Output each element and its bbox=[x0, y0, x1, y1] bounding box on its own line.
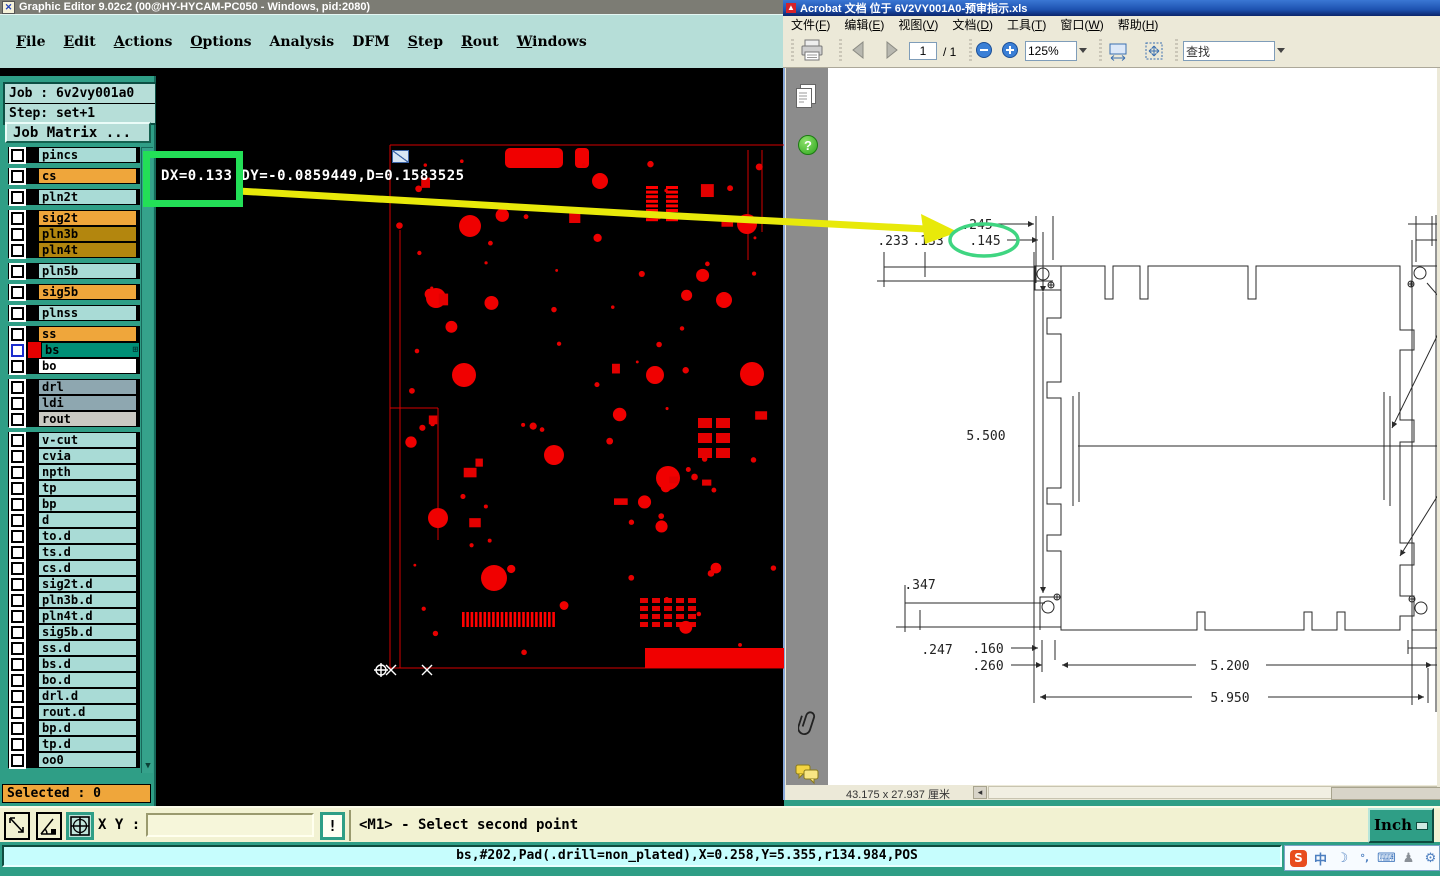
fit-width-button[interactable] bbox=[1107, 40, 1129, 62]
menu-windows[interactable]: Windows bbox=[517, 34, 587, 50]
previous-page-button[interactable] bbox=[847, 39, 871, 61]
layer-row-cs[interactable]: cs bbox=[8, 168, 140, 184]
layer-row-pincs[interactable]: pincs bbox=[8, 147, 140, 163]
layer-row-ss[interactable]: ss bbox=[8, 326, 140, 342]
canvas-crosshair-marks bbox=[156, 76, 784, 806]
layer-row-pln4t[interactable]: pln4t bbox=[8, 242, 140, 258]
layer-name[interactable]: ss bbox=[38, 326, 137, 342]
layer-name[interactable]: v-cut bbox=[38, 432, 137, 448]
layer-visibility-checkbox[interactable] bbox=[11, 754, 24, 767]
layer-row-sig5b[interactable]: sig5b bbox=[8, 284, 140, 300]
paperclip-icon[interactable] bbox=[798, 710, 818, 740]
layer-name[interactable]: ldi bbox=[38, 395, 137, 411]
dim-5500: 5.500 bbox=[966, 429, 1005, 444]
dim-233: .233 bbox=[877, 234, 908, 249]
layer-name[interactable]: sig5b.d bbox=[38, 624, 137, 640]
layer-name[interactable]: ss.d bbox=[38, 640, 137, 656]
layer-name[interactable]: cvia bbox=[38, 448, 137, 464]
layer-name[interactable]: bs⊞ bbox=[41, 342, 140, 358]
dim-5200: 5.200 bbox=[1210, 659, 1249, 674]
layer-name[interactable]: tp.d bbox=[38, 736, 137, 752]
ge-app-icon: ✕ bbox=[2, 1, 15, 14]
page-count-label: / 1 bbox=[943, 45, 956, 59]
layer-name[interactable]: bo bbox=[38, 358, 137, 374]
layer-name[interactable]: cs.d bbox=[38, 560, 137, 576]
layer-visibility-checkbox[interactable] bbox=[11, 546, 24, 559]
fit-page-button[interactable] bbox=[1143, 40, 1165, 62]
punctuation-icon[interactable]: °, bbox=[1356, 850, 1373, 867]
measure-distance-button[interactable] bbox=[4, 812, 30, 840]
units-toggle-button[interactable]: Inch bbox=[1368, 808, 1434, 843]
layer-name[interactable]: ts.d bbox=[38, 544, 137, 560]
layer-visibility-checkbox[interactable] bbox=[11, 286, 24, 299]
pages-icon-back bbox=[796, 88, 812, 108]
layer-visibility-checkbox[interactable] bbox=[11, 170, 24, 183]
layer-row-bp[interactable]: bp bbox=[8, 496, 140, 512]
layer-name[interactable]: pln3b bbox=[38, 226, 137, 242]
layer-name[interactable]: bp.d bbox=[38, 720, 137, 736]
layer-row-pln4t.d[interactable]: pln4t.d bbox=[8, 608, 140, 624]
layer-visibility-checkbox[interactable] bbox=[11, 397, 24, 410]
layer-visibility-checkbox[interactable] bbox=[11, 626, 24, 639]
layer-visibility-checkbox[interactable] bbox=[11, 642, 24, 655]
layer-row-bs[interactable]: bs⊞ bbox=[8, 342, 140, 358]
layer-row-bo.d[interactable]: bo.d bbox=[8, 672, 140, 688]
acrobat-titlebar[interactable]: ▲ Acrobat 文档 位于 6V2VY001A0-预审指示.xls bbox=[783, 0, 1440, 16]
next-page-button[interactable] bbox=[879, 39, 903, 61]
layer-name[interactable]: drl.d bbox=[38, 688, 137, 704]
layer-row-v-cut[interactable]: v-cut bbox=[8, 432, 140, 448]
units-toggle-icon bbox=[1416, 822, 1428, 830]
layer-row-tp[interactable]: tp bbox=[8, 480, 140, 496]
layer-row-pln2t[interactable]: pln2t bbox=[8, 189, 140, 205]
layer-row-ldi[interactable]: ldi bbox=[8, 395, 140, 411]
layer-visibility-checkbox[interactable] bbox=[11, 265, 24, 278]
measure-cursor-icon bbox=[392, 150, 409, 163]
sogou-input-icon[interactable]: S bbox=[1290, 850, 1307, 867]
layer-name[interactable]: sig2t.d bbox=[38, 576, 137, 592]
xy-coordinate-input[interactable] bbox=[146, 813, 314, 837]
zoom-in-button[interactable] bbox=[1001, 41, 1019, 59]
job-matrix-button[interactable]: Job Matrix ... bbox=[5, 122, 151, 143]
layer-row-tp.d[interactable]: tp.d bbox=[8, 736, 140, 752]
measure-angle-button[interactable] bbox=[36, 812, 62, 840]
measurement-highlight-box bbox=[143, 151, 243, 207]
layer-visibility-checkbox[interactable] bbox=[11, 149, 24, 162]
layer-visibility-checkbox[interactable] bbox=[11, 706, 24, 719]
layer-name[interactable]: to.d bbox=[38, 528, 137, 544]
menu-actions[interactable]: Actions bbox=[114, 34, 173, 50]
acrobat-menu-item[interactable]: 视图(V) bbox=[898, 16, 938, 33]
acrobat-statusbar: 43.175 x 27.937 厘米 ◂ bbox=[786, 785, 1437, 800]
layer-row-cvia[interactable]: cvia bbox=[8, 448, 140, 464]
layer-visibility-checkbox[interactable] bbox=[11, 610, 24, 623]
layer-visibility-checkbox[interactable] bbox=[11, 191, 24, 204]
layer-row-rout[interactable]: rout bbox=[8, 411, 140, 427]
layer-name[interactable]: tp bbox=[38, 480, 137, 496]
layer-name[interactable]: rout bbox=[38, 411, 137, 427]
layer-visibility-checkbox[interactable] bbox=[11, 212, 24, 225]
menu-dfm[interactable]: DFM bbox=[352, 34, 390, 50]
layer-visibility-checkbox[interactable] bbox=[11, 578, 24, 591]
layer-name[interactable]: pln5b bbox=[38, 263, 137, 279]
layer-row-rout.d[interactable]: rout.d bbox=[8, 704, 140, 720]
layer-visibility-checkbox[interactable] bbox=[11, 738, 24, 751]
layer-row-cs.d[interactable]: cs.d bbox=[8, 560, 140, 576]
layer-visibility-checkbox[interactable] bbox=[11, 434, 24, 447]
zoom-level-combobox[interactable]: 125% bbox=[1025, 41, 1077, 61]
menu-file[interactable]: File bbox=[16, 34, 46, 50]
layer-row-ts.d[interactable]: ts.d bbox=[8, 544, 140, 560]
ge-window-title: Graphic Editor 9.02c2 (00@HY-HYCAM-PC050… bbox=[19, 1, 370, 13]
zoom-out-button[interactable] bbox=[975, 41, 993, 59]
menu-options[interactable]: Options bbox=[190, 34, 251, 50]
system-tray: S 中 ☽ °, ⌨ ♟ ⚙ bbox=[1284, 845, 1440, 871]
layer-visibility-checkbox[interactable] bbox=[11, 307, 24, 320]
dim-260: .260 bbox=[972, 659, 1003, 674]
layer-visibility-checkbox[interactable] bbox=[11, 482, 24, 495]
layer-row-drl[interactable]: drl bbox=[8, 379, 140, 395]
layer-name[interactable]: bo.d bbox=[38, 672, 137, 688]
menu-rout[interactable]: Rout bbox=[461, 34, 499, 50]
layer-row-sig5b.d[interactable]: sig5b.d bbox=[8, 624, 140, 640]
print-button[interactable] bbox=[799, 37, 825, 63]
scroll-left-button[interactable]: ◂ bbox=[973, 786, 987, 799]
layer-name[interactable]: bs.d bbox=[38, 656, 137, 672]
alert-button[interactable]: ! bbox=[320, 812, 345, 840]
dim-247: .247 bbox=[921, 643, 952, 658]
acrobat-menu-item[interactable]: 文件(F) bbox=[791, 16, 830, 33]
layer-visibility-checkbox[interactable] bbox=[11, 466, 24, 479]
step-label: Step: set+1 bbox=[5, 104, 155, 123]
layer-name[interactable]: sig5b bbox=[38, 284, 137, 300]
ge-bottom-toolbar: X Y : ! <M1> - Select second point Inch bbox=[0, 806, 1440, 842]
scroll-down-arrow[interactable]: ▼ bbox=[142, 759, 154, 773]
layer-name[interactable]: pln2t bbox=[38, 189, 137, 205]
find-dropdown-arrow-icon[interactable] bbox=[1277, 48, 1285, 53]
ge-menu-items: FileEditActionsOptionsAnalysisDFMStepRou… bbox=[16, 34, 587, 50]
layer-name[interactable]: pln3b.d bbox=[38, 592, 137, 608]
layer-name[interactable]: rout.d bbox=[38, 704, 137, 720]
acrobat-menu-item[interactable]: 文档(D) bbox=[952, 16, 993, 33]
ge-bottom-frame bbox=[0, 867, 1440, 876]
keyboard-icon[interactable]: ⌨ bbox=[1378, 850, 1395, 867]
layer-visibility-checkbox[interactable] bbox=[11, 450, 24, 463]
layer-name[interactable]: npth bbox=[38, 464, 137, 480]
layer-row-drl.d[interactable]: drl.d bbox=[8, 688, 140, 704]
ge-menubar: FileEditActionsOptionsAnalysisDFMStepRou… bbox=[0, 14, 784, 68]
layer-row-d[interactable]: d bbox=[8, 512, 140, 528]
layer-visibility-checkbox[interactable] bbox=[11, 360, 24, 373]
layer-row-sig2t.d[interactable]: sig2t.d bbox=[8, 576, 140, 592]
acrobat-menubar: 文件(F)编辑(E)视图(V)文档(D)工具(T)窗口(W)帮助(H) bbox=[783, 16, 1440, 33]
find-input[interactable] bbox=[1183, 41, 1275, 61]
ge-status-line: bs,#202,Pad(.drill=non_plated),X=0.258,Y… bbox=[2, 845, 1282, 867]
layer-visibility-checkbox[interactable] bbox=[11, 674, 24, 687]
acrobat-window-title: Acrobat 文档 位于 6V2VY001A0-预审指示.xls bbox=[800, 0, 1027, 16]
acrobat-menu-item[interactable]: 工具(T) bbox=[1007, 16, 1046, 33]
layer-visibility-checkbox[interactable] bbox=[11, 344, 24, 357]
engineering-drawing: .245 .233 .133 .145 5.500 .347 .247 .160… bbox=[828, 68, 1437, 785]
layer-row-pln3b[interactable]: pln3b bbox=[8, 226, 140, 242]
dim-5950: 5.950 bbox=[1210, 691, 1249, 706]
menu-analysis[interactable]: Analysis bbox=[270, 34, 335, 50]
acrobat-menu-item[interactable]: 编辑(E) bbox=[844, 16, 884, 33]
job-info-box: Job : 6v2vy001a0 Step: set+1 bbox=[3, 82, 157, 125]
layer-name[interactable]: sig2t bbox=[38, 210, 137, 226]
page-number-input[interactable] bbox=[909, 42, 937, 60]
layer-visibility-checkbox[interactable] bbox=[11, 328, 24, 341]
layer-visibility-checkbox[interactable] bbox=[11, 690, 24, 703]
ge-sidebar: Job : 6v2vy001a0 Step: set+1 Job Matrix … bbox=[0, 76, 156, 806]
acrobat-menu-item[interactable]: 帮助(H) bbox=[1118, 16, 1159, 33]
dim-145: .145 bbox=[969, 234, 1000, 249]
layer-row-pln3b.d[interactable]: pln3b.d bbox=[8, 592, 140, 608]
layer-list-scrollbar[interactable]: ▼ bbox=[141, 147, 153, 773]
zoom-dropdown-arrow-icon[interactable] bbox=[1079, 48, 1087, 53]
layer-visibility-checkbox[interactable] bbox=[11, 413, 24, 426]
layer-row-ss.d[interactable]: ss.d bbox=[8, 640, 140, 656]
selected-count-bar: Selected : 0 bbox=[2, 784, 151, 803]
help-icon[interactable]: ? bbox=[798, 135, 818, 155]
dim-245: .245 bbox=[961, 218, 992, 233]
chinese-mode-icon[interactable]: 中 bbox=[1312, 850, 1329, 867]
layer-name[interactable]: drl bbox=[38, 379, 137, 395]
command-prompt-message: <M1> - Select second point bbox=[349, 810, 1363, 841]
job-label: Job : 6v2vy001a0 bbox=[5, 84, 155, 104]
layer-visibility-checkbox[interactable] bbox=[11, 381, 24, 394]
layer-visibility-checkbox[interactable] bbox=[11, 658, 24, 671]
layer-row-bs.d[interactable]: bs.d bbox=[8, 656, 140, 672]
layer-visibility-checkbox[interactable] bbox=[11, 530, 24, 543]
layer-color-swatch[interactable] bbox=[28, 342, 41, 358]
screen: ✕ Graphic Editor 9.02c2 (00@HY-HYCAM-PC0… bbox=[0, 0, 1440, 876]
acrobat-menu-item[interactable]: 窗口(W) bbox=[1060, 16, 1103, 33]
layer-name[interactable]: pincs bbox=[38, 147, 137, 163]
layer-name[interactable]: plnss bbox=[38, 305, 137, 321]
layer-name[interactable]: pln4t bbox=[38, 242, 137, 258]
layer-row-bo[interactable]: bo bbox=[8, 358, 140, 374]
layer-visibility-checkbox[interactable] bbox=[11, 562, 24, 575]
person-icon[interactable]: ♟ bbox=[1400, 850, 1417, 867]
xy-label: X Y : bbox=[98, 817, 140, 833]
layer-visibility-checkbox[interactable] bbox=[11, 594, 24, 607]
acrobat-app-icon: ▲ bbox=[786, 3, 796, 13]
layer-row-plnss[interactable]: plnss bbox=[8, 305, 140, 321]
acrobat-toolbar: / 1 125% bbox=[783, 33, 1440, 68]
layer-row-to.d[interactable]: to.d bbox=[8, 528, 140, 544]
wrench-icon[interactable]: ⚙ bbox=[1422, 850, 1439, 867]
page-size-label: 43.175 x 27.937 厘米 bbox=[846, 786, 950, 802]
dim-133: .133 bbox=[912, 234, 943, 249]
ge-titlebar[interactable]: ✕ Graphic Editor 9.02c2 (00@HY-HYCAM-PC0… bbox=[0, 0, 784, 14]
layer-visibility-checkbox[interactable] bbox=[11, 498, 24, 511]
layer-name[interactable]: bp bbox=[38, 496, 137, 512]
layer-row-oo0[interactable]: oo0 bbox=[8, 752, 140, 768]
menu-edit[interactable]: Edit bbox=[64, 34, 96, 50]
layer-visibility-checkbox[interactable] bbox=[11, 244, 24, 257]
layer-row-bp.d[interactable]: bp.d bbox=[8, 720, 140, 736]
ge-separator bbox=[0, 68, 784, 76]
layer-row-pln5b[interactable]: pln5b bbox=[8, 263, 140, 279]
menu-step[interactable]: Step bbox=[408, 34, 443, 50]
horizontal-scrollbar-thumb[interactable] bbox=[1331, 787, 1440, 800]
layer-name[interactable]: oo0 bbox=[38, 752, 137, 768]
layer-name[interactable]: pln4t.d bbox=[38, 608, 137, 624]
layer-name[interactable]: cs bbox=[38, 168, 137, 184]
layer-grid-icon: ⊞ bbox=[133, 344, 138, 356]
acrobat-left-panel: ? bbox=[786, 68, 828, 785]
layer-row-npth[interactable]: npth bbox=[8, 464, 140, 480]
dim-160: .160 bbox=[972, 642, 1003, 657]
layer-row-sig2t[interactable]: sig2t bbox=[8, 210, 140, 226]
layer-visibility-checkbox[interactable] bbox=[11, 722, 24, 735]
layer-name[interactable]: d bbox=[38, 512, 137, 528]
layer-visibility-checkbox[interactable] bbox=[11, 514, 24, 527]
layer-list: pincscspln2tsig2tpln3bpln4tpln5bsig5bpln… bbox=[8, 147, 140, 768]
horizontal-scrollbar[interactable] bbox=[988, 786, 1437, 799]
layer-visibility-checkbox[interactable] bbox=[11, 228, 24, 241]
snap-grid-button[interactable] bbox=[66, 812, 94, 840]
dim-347: .347 bbox=[904, 578, 935, 593]
moon-icon[interactable]: ☽ bbox=[1334, 850, 1351, 867]
